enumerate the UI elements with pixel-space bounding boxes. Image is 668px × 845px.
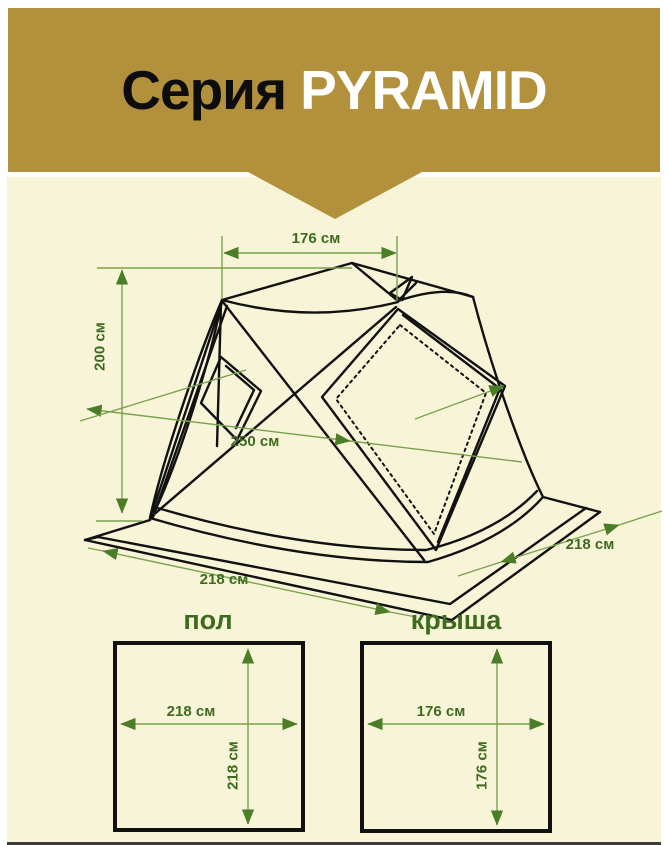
roof-width-label: 176 см — [381, 703, 501, 720]
dim-label-height: 200 см — [92, 307, 109, 387]
dim-label-base-right: 218 см — [530, 536, 650, 553]
cream-background — [7, 177, 661, 843]
floor-width-label: 218 см — [131, 703, 251, 720]
roof-height-label: 176 см — [474, 731, 491, 801]
floor-height-label: 218 см — [225, 731, 242, 801]
floor-panel-title: пол — [148, 606, 268, 634]
roof-panel-title: крыша — [396, 606, 516, 634]
dim-label-base-left: 218 см — [164, 571, 284, 588]
dim-label-diagonal: 250 см — [195, 433, 315, 450]
page: СерияPYRAMID — [0, 0, 668, 845]
diagram-canvas — [0, 0, 668, 845]
dim-label-top-width: 176 см — [256, 230, 376, 247]
